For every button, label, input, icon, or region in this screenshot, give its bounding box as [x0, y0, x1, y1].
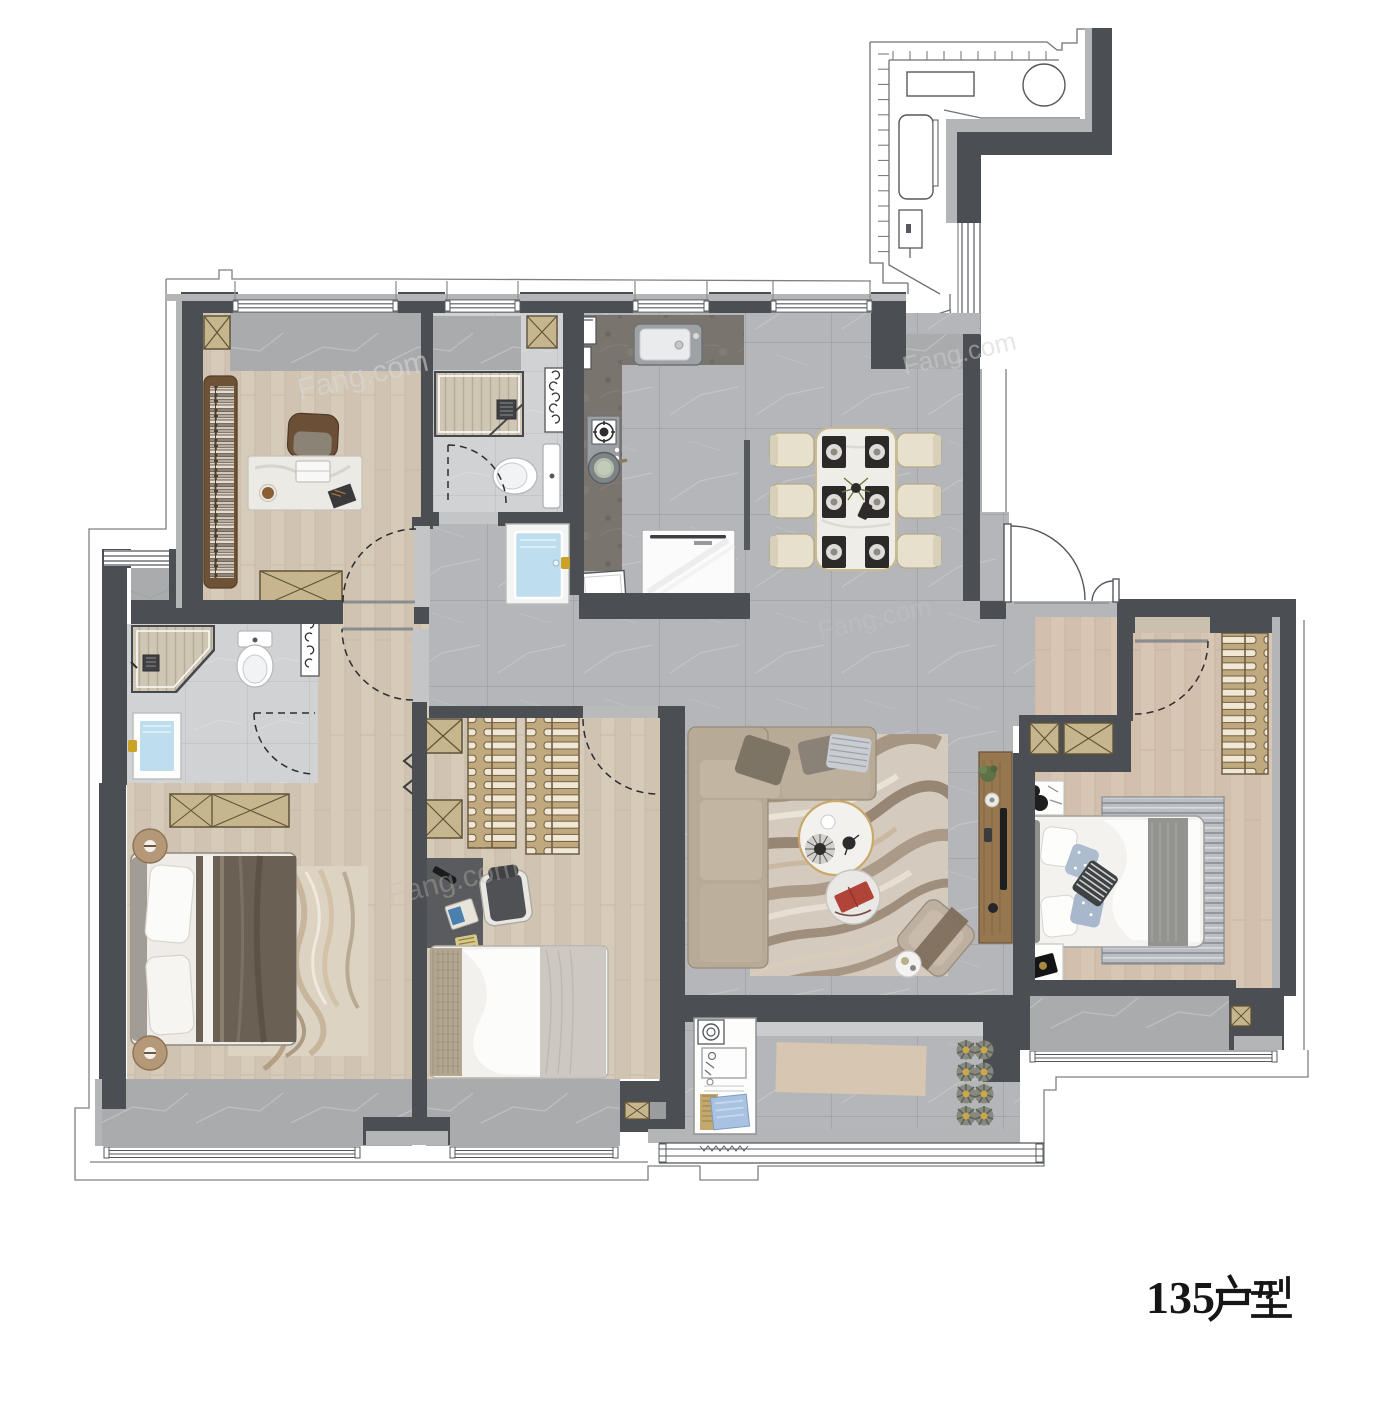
svg-text:135: 135 — [1146, 1272, 1215, 1323]
